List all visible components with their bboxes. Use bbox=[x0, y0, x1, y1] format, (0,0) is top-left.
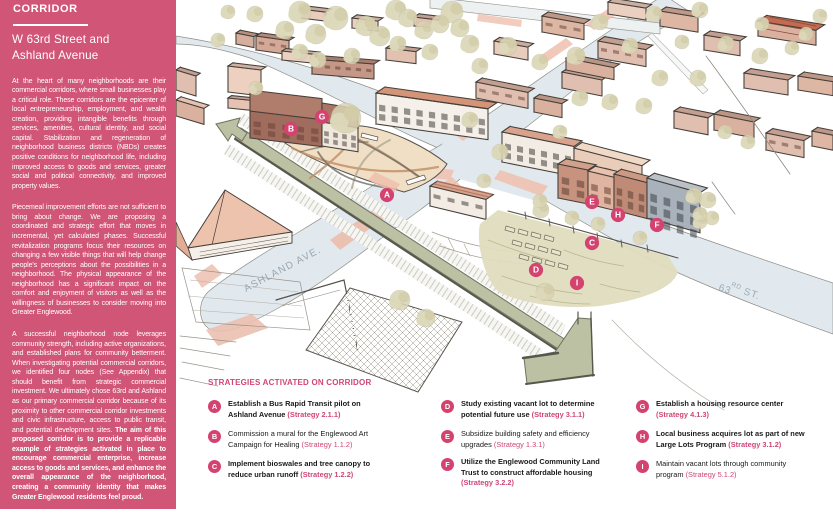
svg-text:D: D bbox=[533, 265, 539, 275]
svg-text:C: C bbox=[589, 238, 595, 248]
svg-text:B: B bbox=[288, 124, 294, 134]
svg-text:G: G bbox=[319, 112, 326, 122]
svg-text:F: F bbox=[654, 220, 659, 230]
svg-text:I: I bbox=[576, 278, 578, 288]
svg-text:H: H bbox=[615, 210, 621, 220]
svg-text:A: A bbox=[384, 190, 390, 200]
svg-text:E: E bbox=[589, 197, 595, 207]
